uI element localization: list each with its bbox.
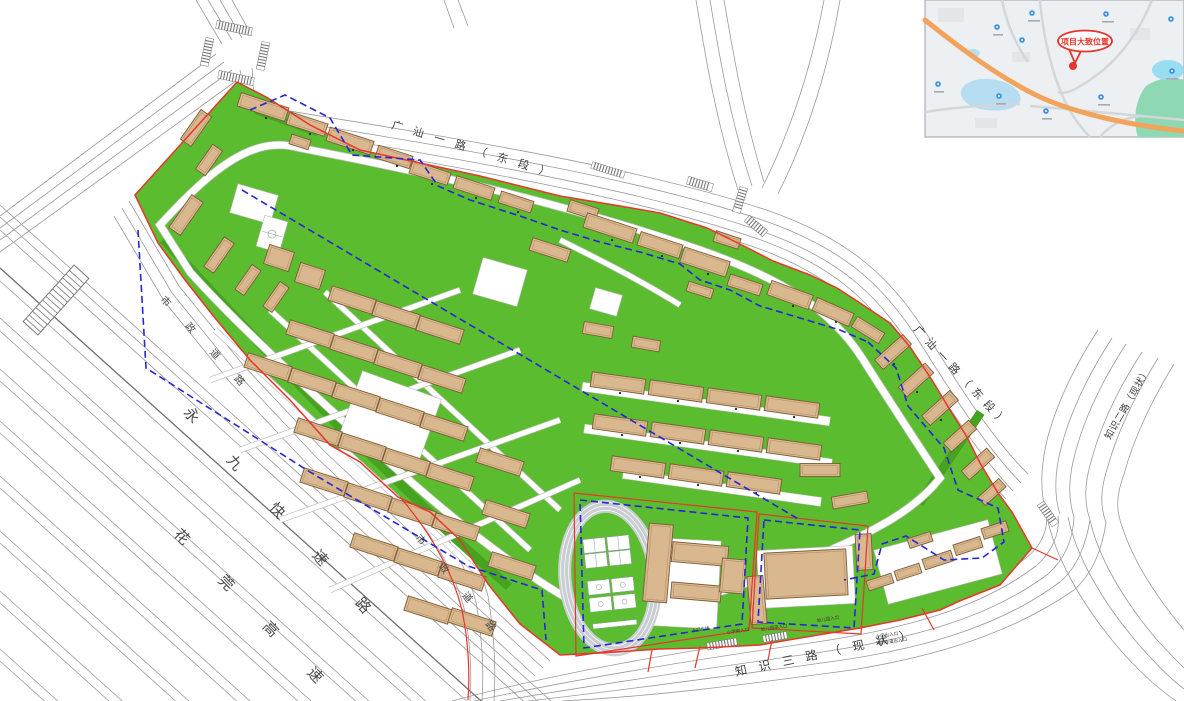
entrance-dot: [792, 305, 794, 307]
entrance-dot: [619, 392, 621, 394]
building-footprint: [404, 596, 452, 624]
red-parcel-line: [695, 646, 700, 668]
building-footprint: [300, 468, 348, 496]
sports-court: [587, 579, 610, 595]
building: [720, 558, 747, 594]
footbridge-layer: [23, 265, 89, 335]
building: [671, 542, 729, 567]
red-parcel-line: [648, 650, 652, 672]
crosswalk: [200, 37, 214, 66]
entrance-dot: [517, 211, 519, 213]
map-pin-icon: [1170, 18, 1172, 20]
site-plan-page: 永九快速路花莞高速广汕一路（东段）广汕一路（东段）知识三路（现状）知识二路（现状…: [0, 0, 1184, 701]
building: [800, 464, 840, 477]
inset-tiny-label: [996, 103, 1006, 105]
inset-park-pond: [1152, 60, 1184, 80]
entrance-dot: [916, 391, 918, 393]
entrance-dot: [679, 442, 681, 444]
map-pin-icon: [996, 26, 998, 28]
expressway-line: [0, 603, 109, 701]
inset-tiny-label: [1102, 21, 1114, 23]
road-line: [458, 0, 468, 26]
expressway-line: [0, 661, 44, 701]
map-pin-icon: [1045, 110, 1047, 112]
entrance-dot: [352, 149, 354, 151]
entrance-dot: [431, 183, 433, 185]
road-line: [778, 0, 840, 194]
entrance-dot: [309, 133, 311, 135]
entrance-dot: [611, 239, 613, 241]
expressway-line: [0, 591, 122, 701]
road-label-zhishi-2nd-road: 知识二路（现状）: [1102, 366, 1152, 441]
entrance-dot: [475, 197, 477, 199]
crosswalk: [256, 41, 270, 70]
map-pin-icon: [998, 95, 1000, 97]
entrance-dot: [396, 165, 398, 167]
entrance-dot: [735, 408, 737, 410]
building: [404, 596, 452, 624]
road-line: [1046, 512, 1176, 701]
crosswalk: [216, 20, 253, 35]
road-line: [208, 0, 232, 40]
building-footprint: [671, 542, 729, 567]
red-parcel-line: [1032, 548, 1058, 560]
map-pin-icon: [1100, 96, 1102, 98]
entrance-dot: [621, 434, 623, 436]
building: [300, 468, 348, 496]
road-line: [710, 0, 752, 186]
map-pin-icon: [1171, 70, 1173, 72]
road-line: [762, 0, 824, 188]
road-label-huawan-expressway: 花莞高速: [170, 526, 360, 701]
inset-tiny-label: [1042, 118, 1052, 120]
road-line: [724, 0, 764, 182]
crosswalk-band: [686, 176, 713, 191]
expressway-line: [0, 649, 58, 701]
road-line: [696, 0, 738, 190]
entrance-dot: [835, 321, 837, 323]
entrance-dot: [707, 273, 709, 275]
building: [350, 533, 398, 561]
inset-city-block: [975, 118, 997, 128]
inset-tiny-label: [993, 34, 1003, 36]
entrance-dot: [639, 476, 641, 478]
project-location-callout-text: 项目大致位置: [1061, 37, 1109, 47]
footbridge-deck: [23, 265, 89, 335]
map-pin-icon: [1105, 13, 1107, 15]
entrance-dot: [661, 255, 663, 257]
inset-city-block: [938, 8, 964, 22]
crosswalk: [744, 215, 768, 237]
inset-tiny-label: [1098, 104, 1110, 106]
master-plan-drawing: 永九快速路花莞高速广汕一路（东段）广汕一路（东段）知识三路（现状）知识二路（现状…: [0, 0, 1184, 701]
inset-tiny-label: [1166, 78, 1178, 80]
project-location-dot: [1069, 62, 1077, 70]
map-pin-icon: [1021, 39, 1023, 41]
road-line: [1122, 526, 1184, 630]
sports-court: [611, 577, 634, 593]
sports-court: [589, 596, 612, 612]
building: [855, 534, 873, 571]
entrance-dot: [265, 117, 267, 119]
road-line: [1090, 520, 1184, 668]
building-footprint: [764, 549, 848, 599]
inset-location-map: 项目大致位置: [925, 0, 1184, 137]
road-line: [444, 0, 454, 28]
building-footprint: [350, 533, 398, 561]
map-pin-icon: [1031, 12, 1033, 14]
building: [764, 549, 848, 599]
inset-tiny-label: [934, 91, 944, 93]
entrance-dot: [737, 450, 739, 452]
road-line: [1118, 364, 1174, 526]
entrance-dot: [697, 484, 699, 486]
sports-court: [613, 593, 636, 609]
footbridge: [23, 265, 89, 335]
expressway-line: [0, 421, 311, 701]
crosswalk: [686, 176, 713, 191]
map-pin-icon: [937, 83, 939, 85]
entrance-dot: [793, 416, 795, 418]
entrance-dot: [940, 419, 942, 421]
entrance-dot: [677, 400, 679, 402]
expressway-line: [0, 488, 237, 701]
inset-tiny-label: [1028, 20, 1040, 22]
